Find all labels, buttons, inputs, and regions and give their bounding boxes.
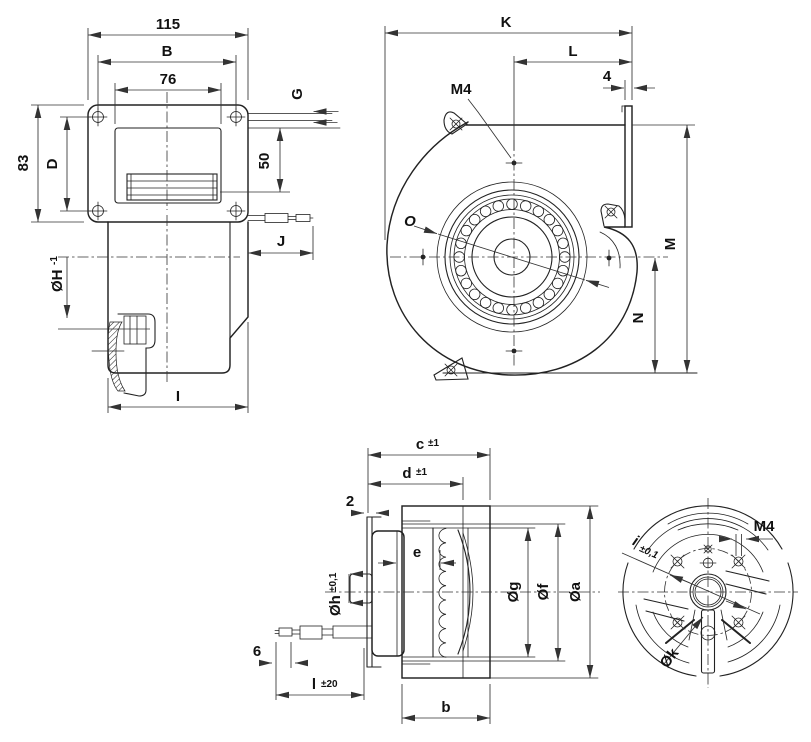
dim-label-76: 76 [160, 71, 177, 88]
dim-label-Of: Øf [535, 583, 552, 601]
dim-label-N: N [630, 313, 647, 324]
view-side-flange: 115 B 76 83 D G 50 [15, 16, 340, 413]
dim-label-2: 2 [346, 493, 354, 510]
dim-label-83: 83 [15, 155, 32, 172]
dim-label-l-tol: ±20 [321, 679, 338, 690]
dim-label-b: b [441, 699, 450, 716]
dim-M4-front: M4 [451, 81, 511, 158]
dim-label-i-tol: ±0,1 [637, 543, 660, 561]
dim-label-M4-rear: M4 [754, 518, 775, 535]
dim-label-G: G [289, 88, 306, 100]
dim-Of: Øf [535, 524, 558, 661]
scroll-housing-outline [387, 106, 697, 375]
dim-label-I: I [176, 388, 180, 405]
lead-wires-terminal [248, 214, 313, 223]
dim-I: I [108, 322, 248, 413]
dim-4: 4 [603, 68, 655, 100]
dim-label-c: c [416, 436, 424, 453]
dim-label-M: M [662, 238, 679, 251]
dim-L: L [514, 43, 632, 150]
dim-label-J: J [277, 233, 285, 250]
dim-label-OH-tol: -1 [49, 256, 60, 265]
lead-wires-motor [275, 626, 372, 639]
centerlines-view2 [390, 140, 668, 368]
impeller-through-opening [127, 174, 217, 200]
mounting-tab-top-left [444, 112, 467, 134]
dim-M: M [632, 125, 695, 373]
dim-label-Og: Øg [505, 582, 522, 603]
motor-body-outline [108, 222, 248, 373]
dim-label-D: D [44, 158, 61, 169]
dim-label-K: K [501, 14, 512, 31]
dim-Oh: Øh ±0,1 [327, 572, 370, 616]
dim-label-Oa: Øa [567, 581, 584, 602]
mounting-tab-outlet [601, 204, 625, 226]
dim-d: d ±1 [368, 465, 463, 500]
view-side-motor: c ±1 d ±1 2 e Øh ±0,1 [253, 436, 600, 724]
dim-50: 50 [220, 128, 290, 192]
dim-D: D [44, 117, 91, 211]
dim-N: N [630, 258, 655, 373]
dim-l: l ±20 [276, 648, 364, 700]
dim-label-d: d [402, 465, 411, 482]
dim-label-Ok: Øk [657, 645, 683, 672]
view-front-scroll: K L 4 M4 O M N [385, 14, 697, 380]
dim-76: 76 [115, 71, 221, 124]
dim-label-50: 50 [256, 153, 273, 170]
dimension-drawing-page: 115 B 76 83 D G 50 [0, 0, 811, 737]
dim-label-d-tol: ±1 [416, 467, 427, 478]
dim-label-O: O [404, 213, 416, 230]
dim-2: 2 [346, 493, 389, 513]
dim-J: J [248, 226, 313, 260]
motor-bell-side [350, 517, 404, 667]
dimension-drawing: 115 B 76 83 D G 50 [0, 0, 811, 737]
dim-K: K [385, 14, 632, 240]
centerlines-view1 [58, 92, 240, 385]
dim-label-M4-front: M4 [451, 81, 472, 98]
dim-6: 6 [253, 642, 307, 700]
view-rear-motor: i ±0,1 Øk M4 [618, 498, 798, 688]
dim-label-OH: ØH [49, 270, 66, 293]
lead-wires-flange [248, 114, 340, 129]
dim-label-B: B [162, 43, 173, 60]
dim-i: i ±0,1 [622, 532, 760, 614]
dim-label-l: l [312, 676, 316, 693]
mounting-tab-bottom-left [434, 358, 468, 380]
dim-label-Oh: Øh [327, 595, 344, 616]
dim-label-L: L [568, 43, 577, 60]
dim-label-c-tol: ±1 [428, 438, 439, 449]
dim-label-4: 4 [603, 68, 612, 85]
cable-grommet-detail [92, 314, 155, 396]
dim-label-Oh-tol: ±0,1 [328, 572, 339, 592]
dim-b: b [402, 684, 490, 724]
dim-c: c ±1 [368, 436, 490, 513]
dim-OH: ØH -1 [49, 256, 150, 329]
dim-label-115: 115 [156, 16, 180, 33]
impeller-blades-side [433, 528, 473, 657]
dim-label-e: e [413, 544, 421, 561]
flange-outline [88, 105, 248, 222]
dim-G: G [289, 88, 339, 122]
dim-Og: Øg [505, 528, 528, 657]
dim-label-6: 6 [253, 643, 261, 660]
